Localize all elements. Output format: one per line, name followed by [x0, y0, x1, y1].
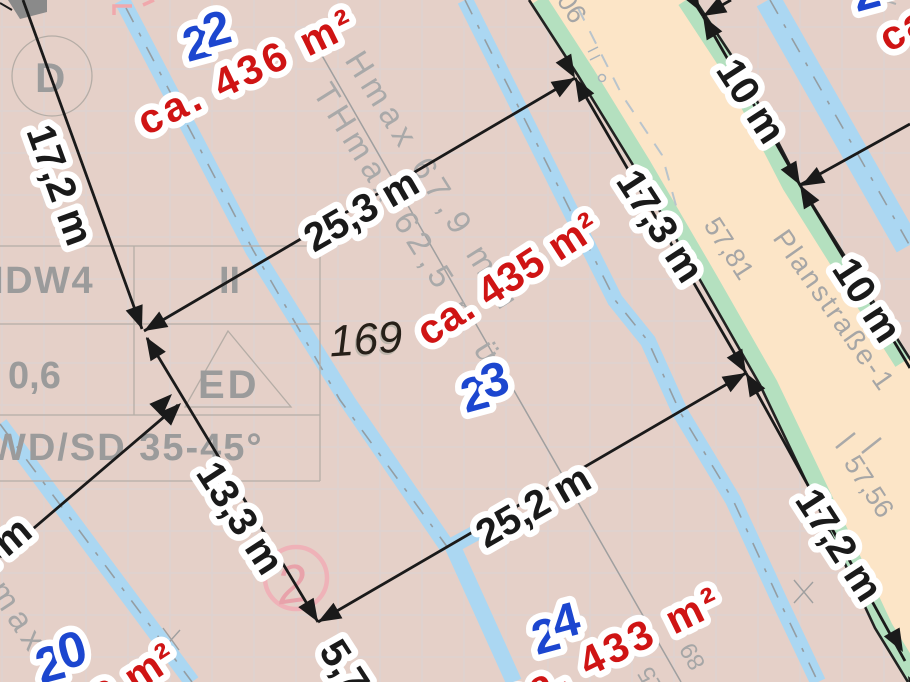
svg-text:MDW4: MDW4: [0, 260, 94, 302]
svg-text:ED: ED: [198, 363, 260, 407]
svg-text:169: 169: [327, 313, 404, 367]
svg-text:0,6: 0,6: [8, 355, 61, 397]
